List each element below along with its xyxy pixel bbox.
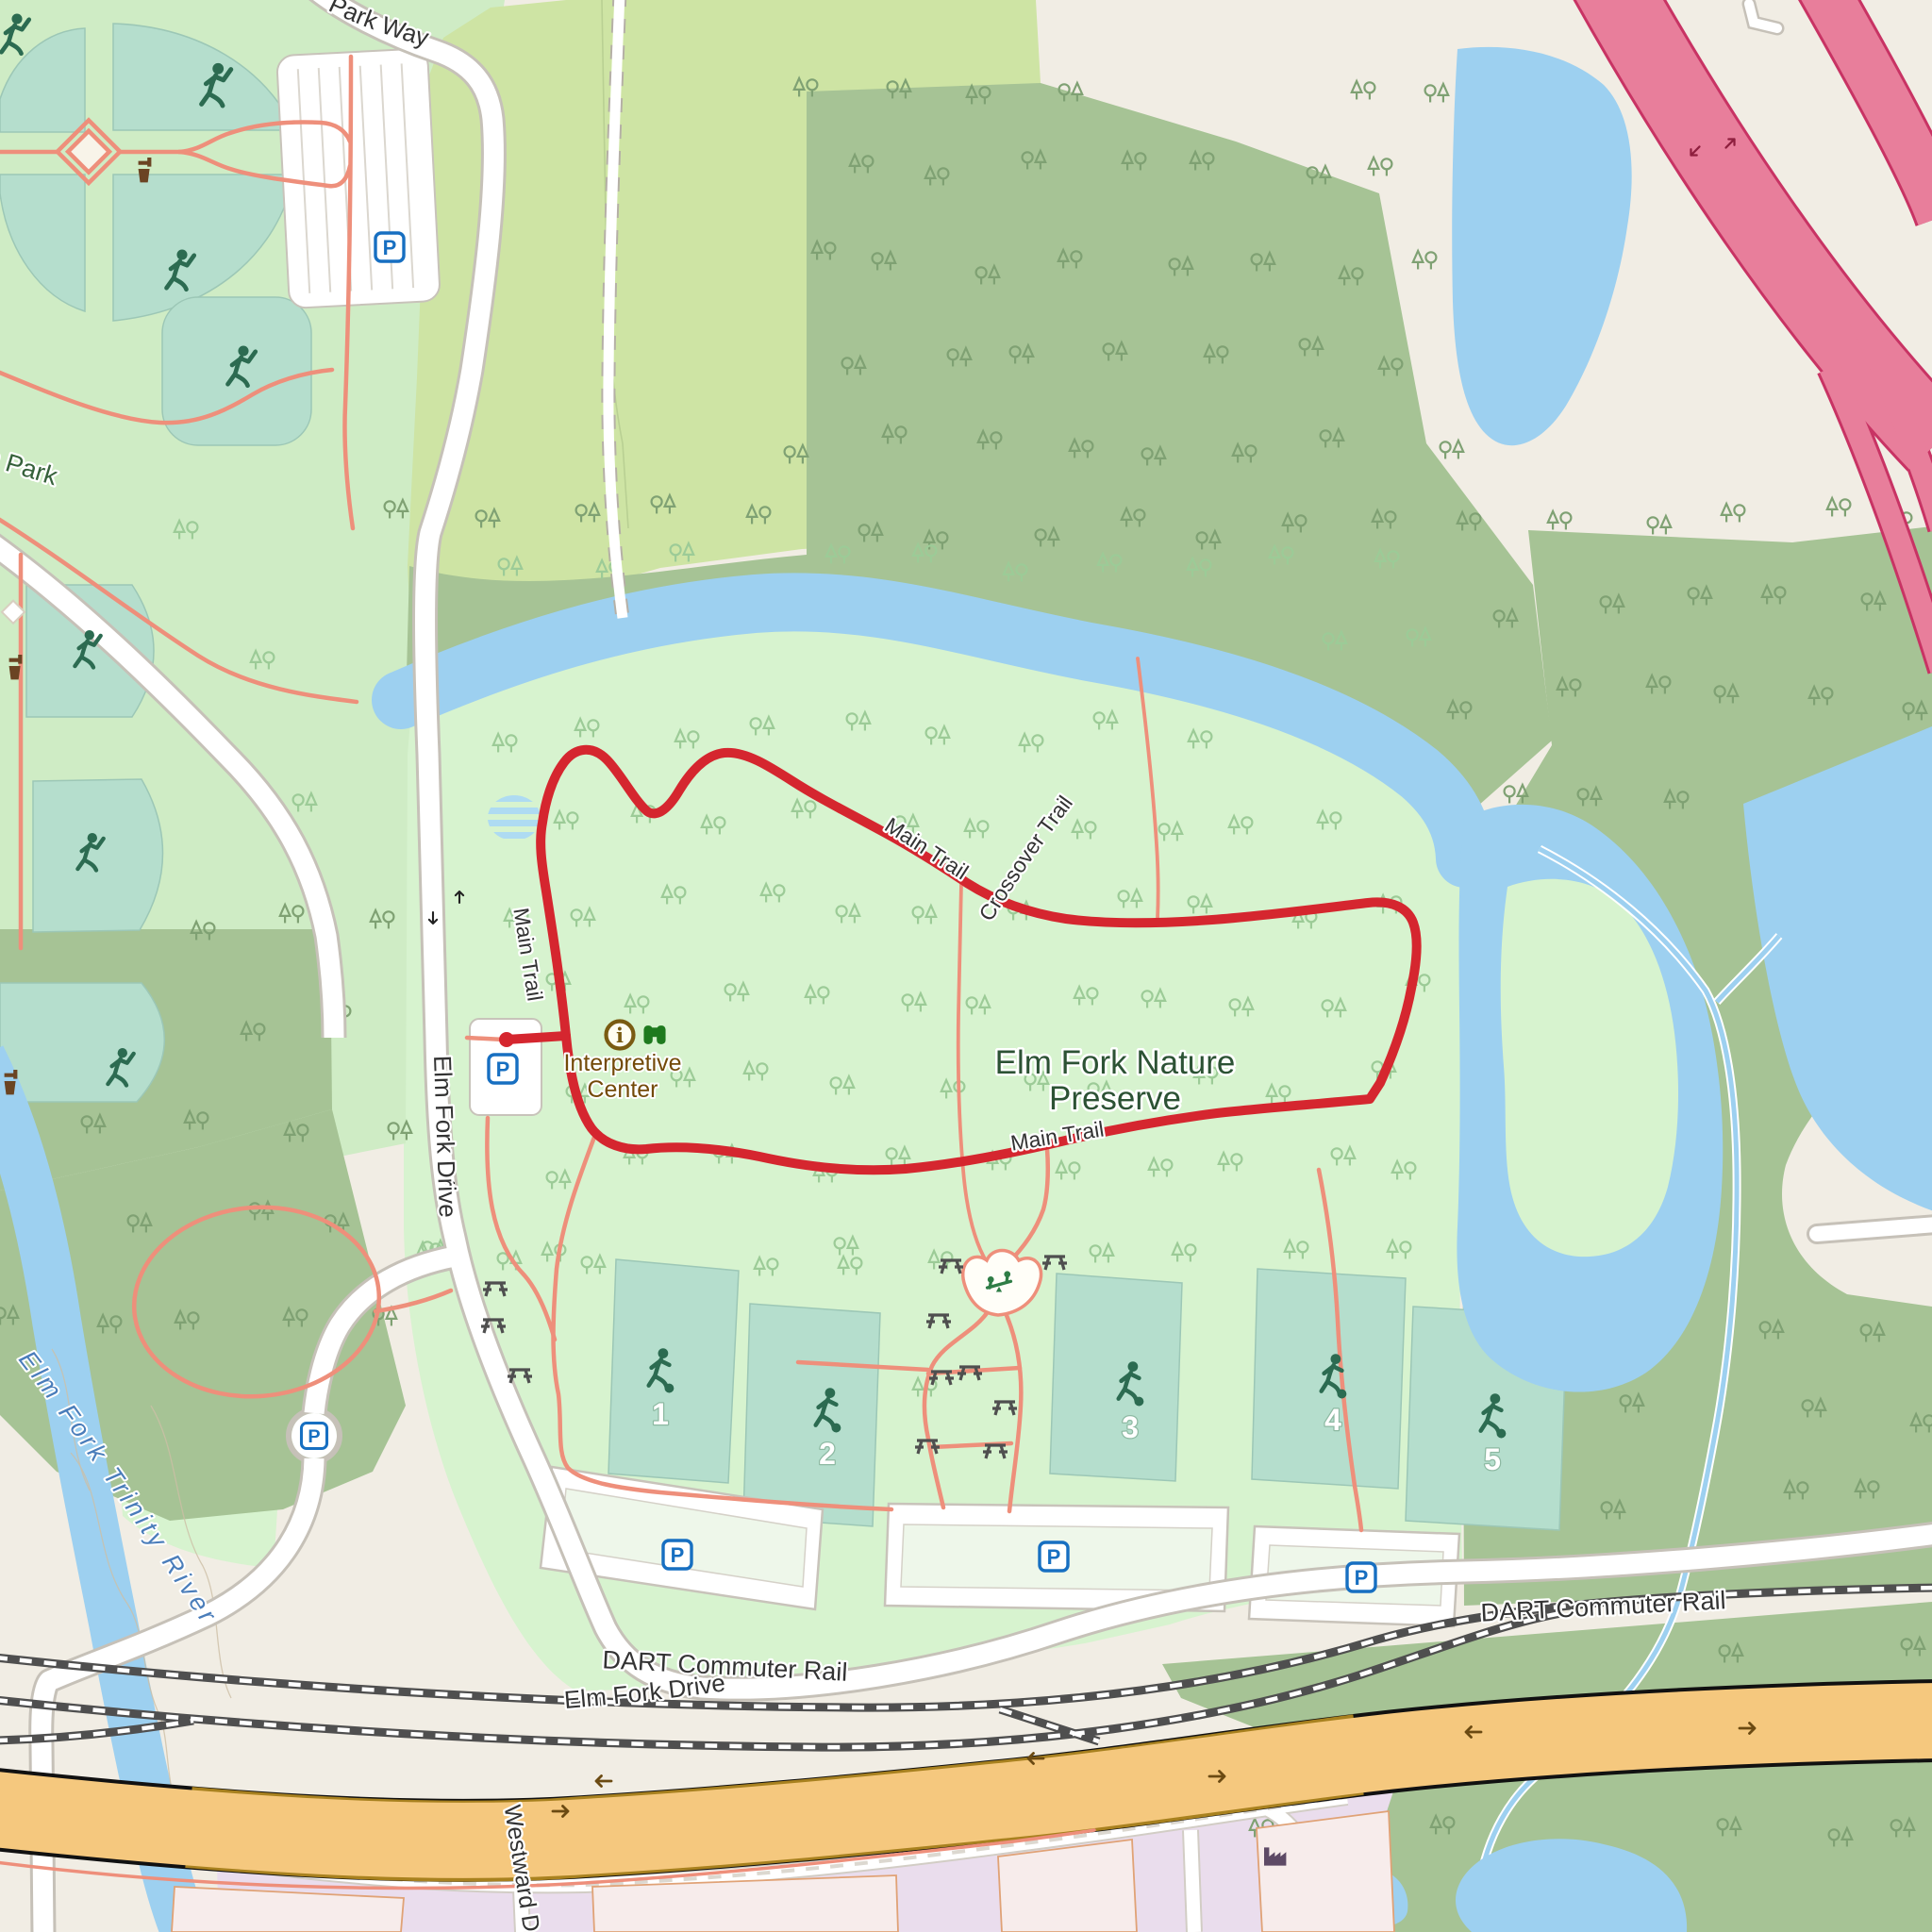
field-number: 1: [652, 1397, 669, 1431]
svg-text:P: P: [383, 236, 397, 259]
svg-text:P: P: [308, 1426, 320, 1447]
svg-text:P: P: [496, 1058, 510, 1081]
road-label-elm-fork-drive: Elm Fork Drive: [428, 1055, 462, 1218]
field-number: 5: [1484, 1442, 1501, 1476]
trailhead-dot: [499, 1032, 514, 1047]
interpretive-center-line2: Center: [587, 1076, 658, 1103]
preserve-name-line1: Elm Fork Nature: [995, 1044, 1236, 1081]
svg-text:P: P: [1047, 1545, 1061, 1569]
interpretive-center-line1: Interpretive: [563, 1050, 681, 1076]
map-canvas[interactable]: i P P P P P P Park Way sh Park Elm Fork …: [0, 0, 1932, 1932]
svg-text:P: P: [671, 1543, 685, 1567]
field-number: 2: [819, 1437, 836, 1471]
trail-spur: [507, 1036, 566, 1040]
field-number: 4: [1324, 1403, 1341, 1437]
information-i: i: [616, 1024, 624, 1047]
field-number: 3: [1122, 1410, 1139, 1444]
svg-text:P: P: [1355, 1566, 1369, 1590]
preserve-name-line2: Preserve: [1049, 1080, 1181, 1117]
map-viewport[interactable]: i P P P P P P Park Way sh Park Elm Fork …: [0, 0, 1932, 1932]
